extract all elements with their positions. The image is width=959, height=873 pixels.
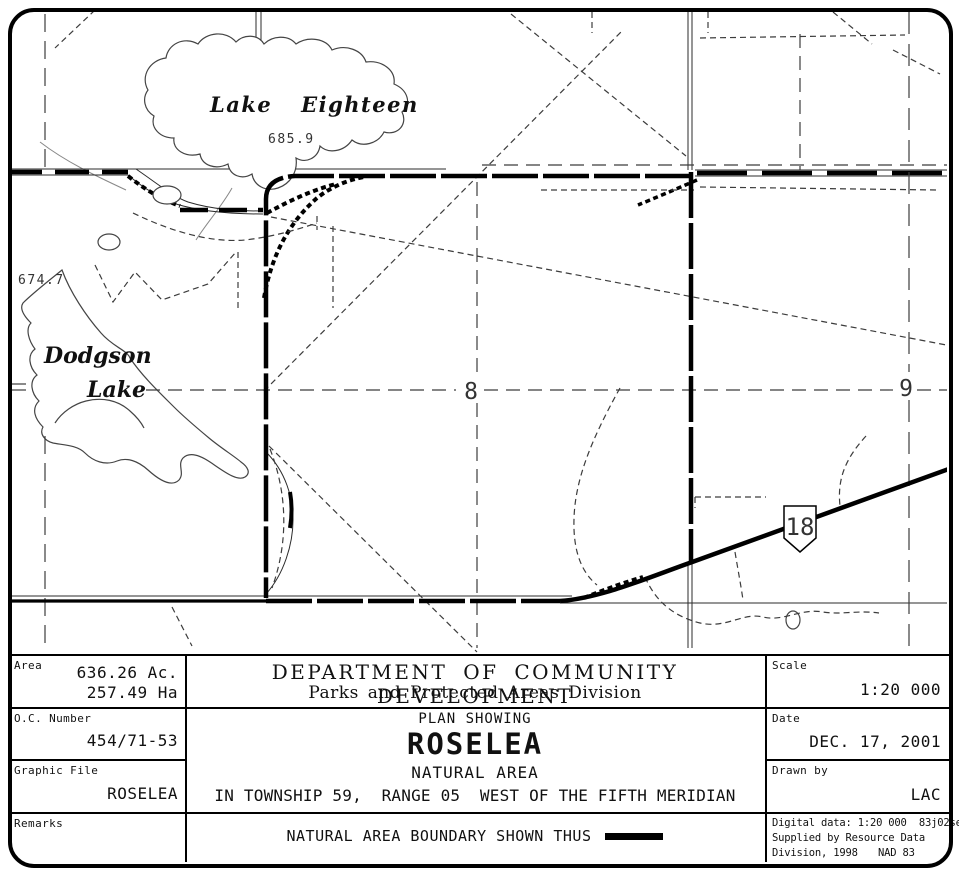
area-hectares-value: 257.49 Ha — [20, 683, 178, 702]
oc-number-label: O.C. Number — [14, 712, 91, 725]
drawn-by-value: LAC — [775, 785, 941, 804]
map-panel: 18 Lake Eighteen 685.9 Dodgson Lake 674.… — [0, 0, 959, 655]
boundary-line-sample — [605, 833, 663, 840]
natural-area-boundary — [266, 172, 691, 601]
digital-data-line2: Supplied by Resource Data — [772, 832, 925, 844]
date-label: Date — [772, 712, 800, 725]
titleblock-row-line-3 — [10, 812, 949, 814]
scale-value: 1:20 000 — [775, 680, 941, 699]
plan-location: IN TOWNSHIP 59, RANGE 05 WEST OF THE FIF… — [187, 786, 763, 805]
plan-subtitle: NATURAL AREA — [187, 763, 763, 782]
section-number-8: 8 — [464, 379, 478, 405]
section-number-9: 9 — [899, 376, 913, 402]
date-value: DEC. 17, 2001 — [775, 732, 941, 751]
division-subtitle: Parks and Protected Areas Division — [187, 683, 763, 703]
graphic-file-value: ROSELEA — [20, 784, 178, 803]
dodgson-lake-label-2: Lake — [86, 377, 146, 403]
dodgson-lake-label-1: Dodgson — [43, 343, 152, 369]
dodgson-lake-elevation: 674.7 — [18, 273, 65, 288]
digital-data-datum: NAD 83 — [878, 847, 915, 859]
highway-18-shield: 18 — [784, 506, 816, 552]
highway-18-line — [560, 466, 957, 601]
small-pond-west — [98, 234, 120, 250]
digital-data-line3: Division, 1998 — [772, 847, 858, 859]
boundary-legend-text: NATURAL AREA BOUNDARY SHOWN THUS — [287, 827, 592, 845]
small-pond-road — [153, 186, 181, 204]
boundary-legend: NATURAL AREA BOUNDARY SHOWN THUS — [187, 827, 763, 845]
highway-18-label: 18 — [786, 513, 815, 541]
plan-title: ROSELEA — [187, 727, 763, 761]
titleblock-row-line-2-right — [765, 759, 949, 761]
digital-data-line1: Digital data: 1:20 000 83j02se — [772, 817, 959, 829]
titleblock-row-line-2-left — [10, 759, 185, 761]
plan-sheet: 18 Lake Eighteen 685.9 Dodgson Lake 674.… — [0, 0, 959, 873]
oc-number-value: 454/71-53 — [20, 731, 178, 750]
lake-eighteen-label: Lake Eighteen — [209, 92, 419, 117]
drawn-by-label: Drawn by — [772, 764, 828, 777]
area-acres-value: 636.26 Ac. — [20, 663, 178, 682]
plan-showing-kicker: PLAN SHOWING — [187, 711, 763, 727]
remarks-label: Remarks — [14, 817, 63, 830]
graphic-file-label: Graphic File — [14, 764, 98, 777]
titleblock-top-line — [10, 654, 949, 656]
lake-eighteen-elevation: 685.9 — [268, 132, 315, 147]
titleblock-col-line-right — [765, 654, 767, 862]
scale-label: Scale — [772, 659, 807, 672]
